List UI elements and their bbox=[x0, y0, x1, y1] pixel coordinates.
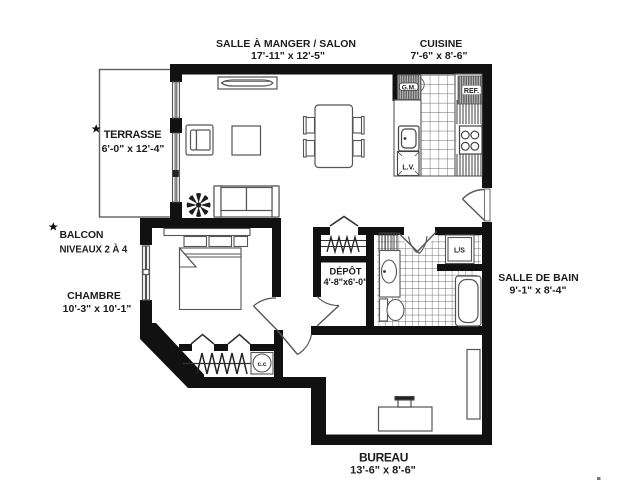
svg-text:13'-6" x 8'-6": 13'-6" x 8'-6" bbox=[350, 465, 416, 477]
svg-text:7'-6" x 8'-6": 7'-6" x 8'-6" bbox=[411, 50, 468, 62]
svg-text:L/S: L/S bbox=[454, 248, 465, 255]
svg-text:G.M.: G.M. bbox=[402, 84, 416, 91]
svg-text:L.V.: L.V. bbox=[402, 165, 414, 172]
svg-text:REF.: REF. bbox=[464, 88, 479, 95]
svg-text:c.c: c.c bbox=[257, 361, 266, 368]
svg-text:TERRASSE: TERRASSE bbox=[104, 129, 162, 141]
svg-text:9'-1" x 8'-4": 9'-1" x 8'-4" bbox=[510, 285, 567, 297]
svg-text:4'-8"x6'-0": 4'-8"x6'-0" bbox=[324, 277, 368, 287]
svg-text:10'-3" x 10'-1": 10'-3" x 10'-1" bbox=[63, 303, 132, 315]
svg-text:17'-11" x 12'-5": 17'-11" x 12'-5" bbox=[251, 50, 325, 62]
svg-text:CUISINE: CUISINE bbox=[420, 38, 463, 50]
svg-text:6'-0" x 12'-4": 6'-0" x 12'-4" bbox=[102, 143, 165, 155]
svg-text:BUREAU: BUREAU bbox=[359, 451, 408, 465]
svg-text:NIVEAUX 2 À 4: NIVEAUX 2 À 4 bbox=[60, 245, 128, 256]
svg-text:BALCON: BALCON bbox=[60, 229, 104, 241]
svg-text:SALLE À MANGER / SALON: SALLE À MANGER / SALON bbox=[216, 37, 356, 50]
svg-text:CHAMBRE: CHAMBRE bbox=[67, 290, 121, 302]
svg-text:SALLE DE BAIN: SALLE DE BAIN bbox=[498, 272, 579, 284]
svg-text:DÉPÔT: DÉPÔT bbox=[329, 266, 361, 277]
